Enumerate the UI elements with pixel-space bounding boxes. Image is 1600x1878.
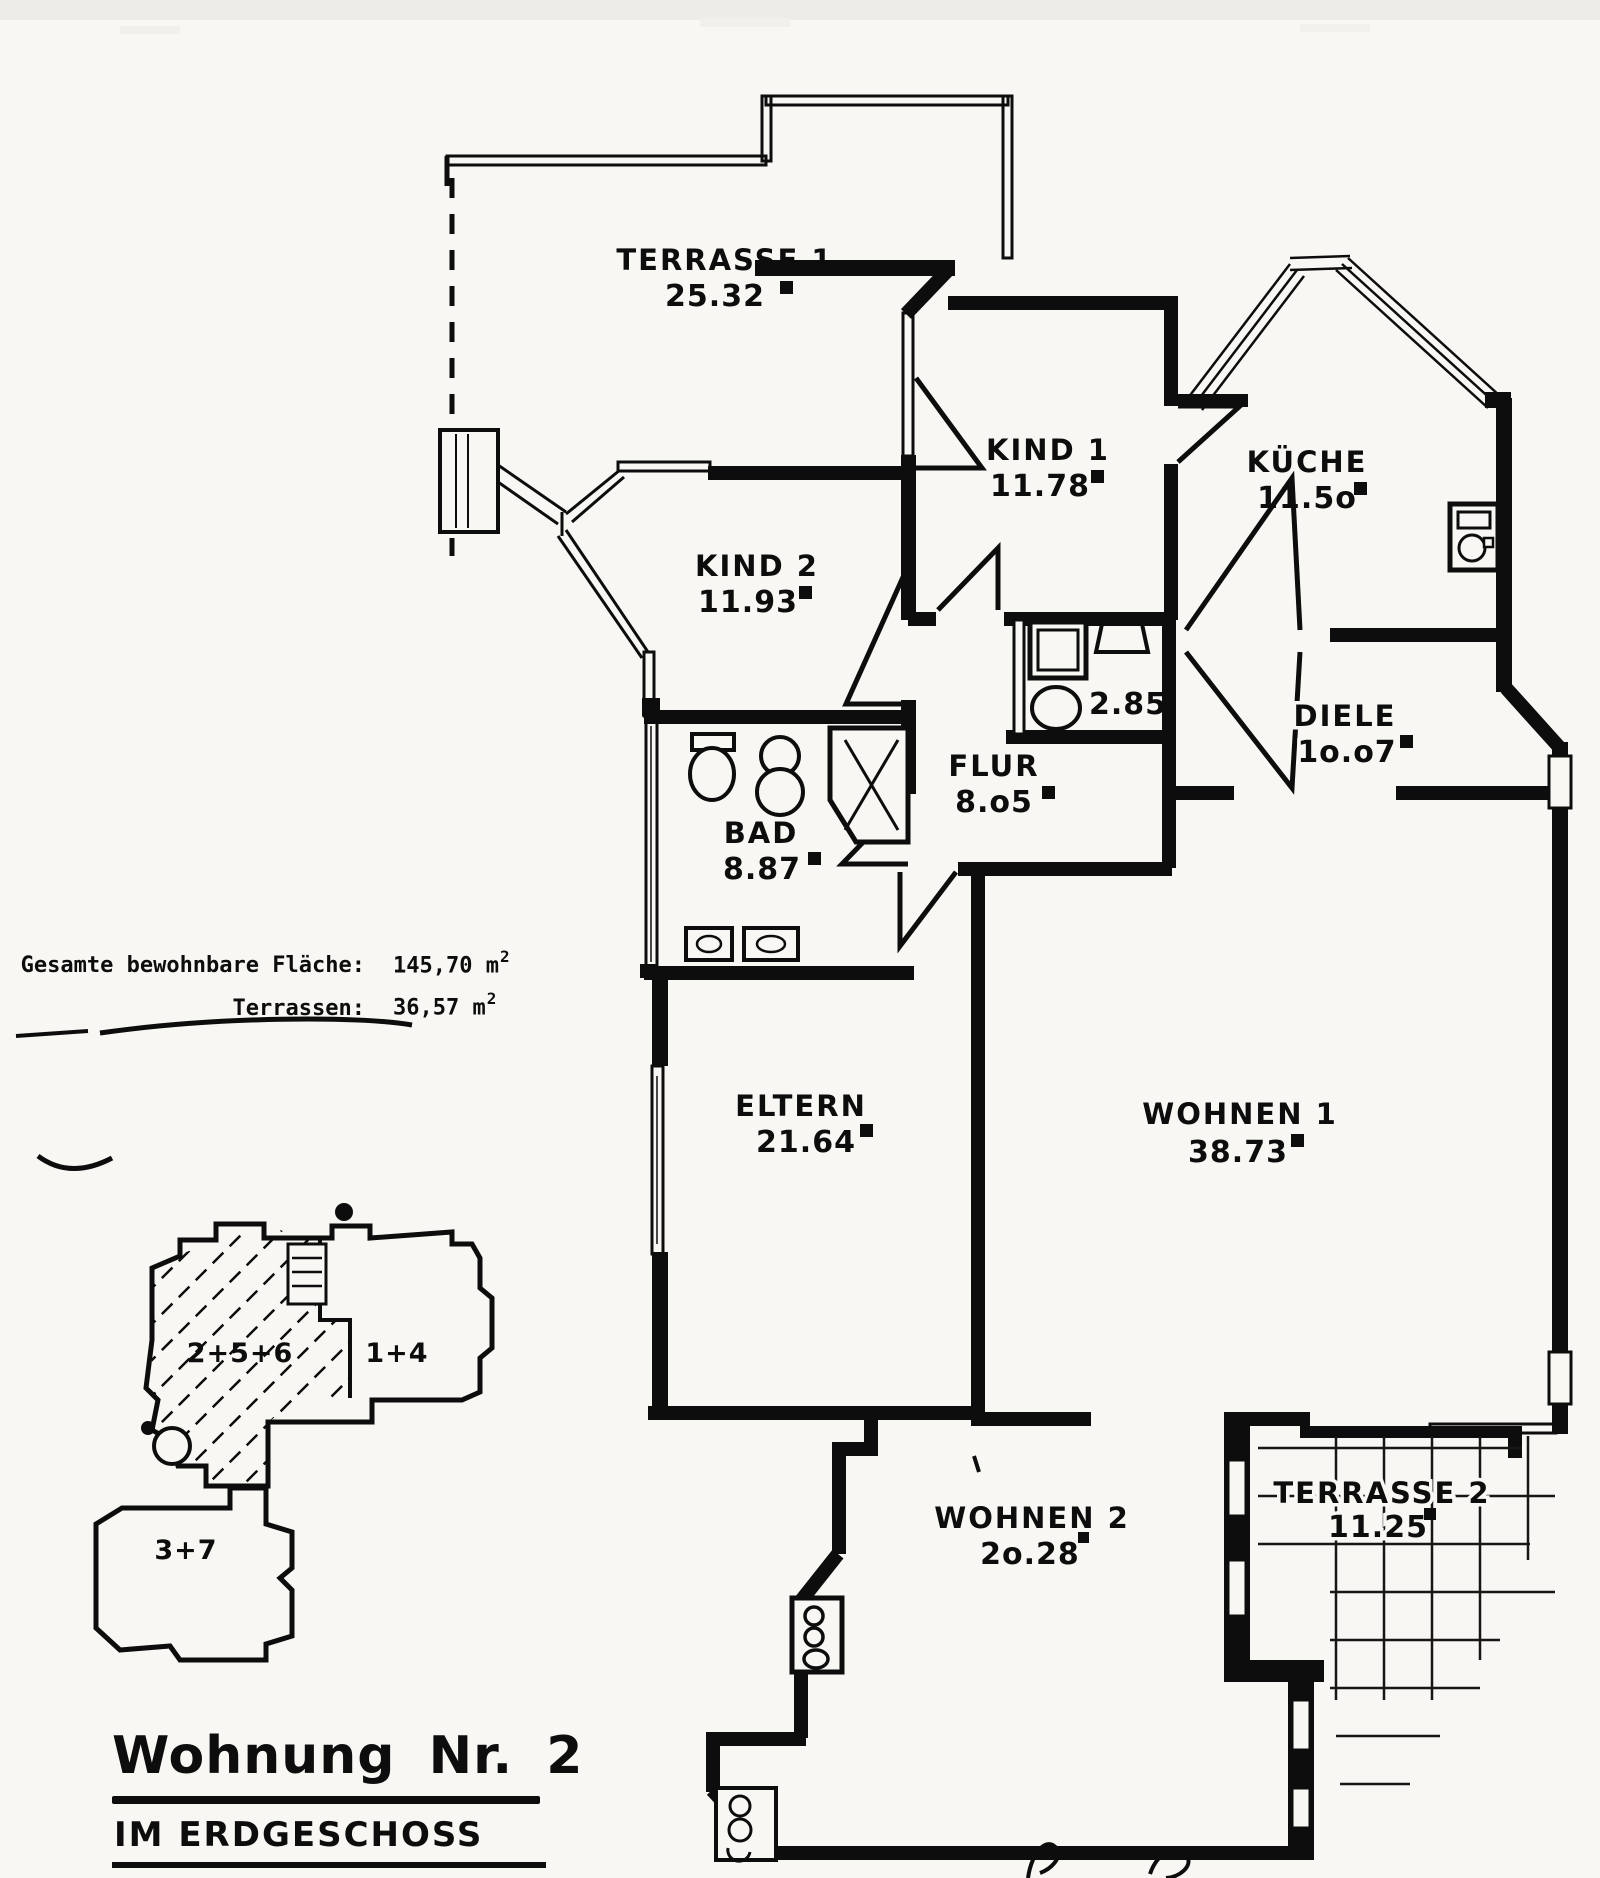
keyplan-lower-outline [96,1488,292,1660]
keyplan-hatching [60,1080,360,1776]
sqm-superscript: 2 [487,989,497,1008]
wohnen2-flue [792,1598,842,1672]
sqm-square-icon [1078,1532,1089,1543]
diele-door-lower [1186,652,1300,788]
room-label-bad: BAD [724,816,799,850]
keyplan [60,1080,492,1776]
plan-title: Wohnung Nr. 2 [112,1726,583,1786]
summary-terraces-value: 36,57 m2 [393,983,495,1025]
room-area-bad: 8.87 [723,852,801,887]
keyplan-dot-upper [335,1203,353,1221]
room-area-terrasse2: 11.25 [1328,1510,1428,1545]
keyplan-label-lower: 3+7 [154,1535,217,1566]
sqm-square-icon [1091,470,1104,483]
room-label-diele: DIELE [1294,699,1397,733]
floorplan-drawing: TERRASSE 1 25.32 KIND 1 11.78 KÜCHE 11.5… [0,0,1600,1878]
room-area-eltern: 21.64 [756,1125,856,1160]
sqm-square-icon [1042,786,1055,799]
title-underline [112,1796,540,1804]
summary-terraces-label: Terrassen: [20,991,365,1026]
sqm-square-icon [808,852,821,865]
kind2-door [846,566,908,704]
sqm-square-icon [1424,1508,1436,1520]
room-label-wohnen1: WOHNEN 1 [1142,1097,1338,1131]
eltern-door [900,872,956,946]
kueche-sink-unit [1450,504,1498,570]
keyplan-dot-lower [141,1421,155,1435]
summary-row-total: Gesamte bewohnbare Fläche: 145,70 m2 [20,941,580,983]
summary-row-terraces: Terrassen: 36,57 m2 [20,983,580,1025]
sqm-square-icon [1400,735,1413,748]
keyplan-label-right: 1+4 [365,1338,428,1369]
room-label-terrasse1: TERRASSE 1 [616,243,833,277]
sqm-square-icon [860,1124,873,1137]
room-area-flur: 8.o5 [955,785,1033,820]
entry-detail [716,1788,776,1861]
room-area-wc: 2.85 [1089,687,1167,722]
room-label-wohnen2: WOHNEN 2 [934,1501,1130,1535]
scan-noise [0,0,1600,34]
room-area-kueche: 11.5o [1257,481,1357,516]
kind2-bay-windows [440,430,710,716]
room-area-kind1: 11.78 [990,469,1090,504]
room-label-kind2: KIND 2 [695,549,819,583]
floorplan-scan-page: TERRASSE 1 25.32 KIND 1 11.78 KÜCHE 11.5… [0,0,1600,1878]
room-area-wohnen1: 38.73 [1188,1135,1288,1170]
kueche-bay-window [1188,256,1500,410]
room-label-kind1: KIND 1 [986,433,1110,467]
walls [640,260,1568,1860]
stray-curve-mark [38,1156,112,1169]
sqm-square-icon [1291,1134,1304,1147]
sqm-square-icon [799,586,812,599]
room-area-kind2: 11.93 [698,585,798,620]
plan-subtitle: IM ERDGESCHOSS [114,1815,483,1855]
room-area-wohnen2: 2o.28 [980,1537,1080,1572]
sqm-superscript: 2 [500,947,510,966]
subtitle-underline [112,1862,546,1868]
summary-total-label: Gesamte bewohnbare Fläche: [20,948,365,983]
room-label-terrasse2: TERRASSE 2 [1273,1476,1490,1510]
room-area-diele: 1o.o7 [1297,735,1396,770]
room-label-eltern: ELTERN [735,1089,867,1123]
room-area-terrasse1: 25.32 [665,279,765,314]
summary-total-value: 145,70 m2 [393,941,509,983]
room-label-kueche: KÜCHE [1247,445,1368,479]
kind1-terrace-door [916,378,982,468]
kueche-door [1178,406,1240,462]
room-labels: TERRASSE 1 25.32 KIND 1 11.78 KÜCHE 11.5… [616,243,1490,1572]
kind1-door [938,548,998,610]
sqm-square-icon [780,281,793,294]
sqm-square-icon [1354,482,1367,495]
area-summary: Gesamte bewohnbare Fläche: 145,70 m2 Ter… [20,941,580,1026]
room-label-flur: FLUR [948,749,1039,783]
keyplan-label-hatched: 2+5+6 [187,1338,294,1369]
